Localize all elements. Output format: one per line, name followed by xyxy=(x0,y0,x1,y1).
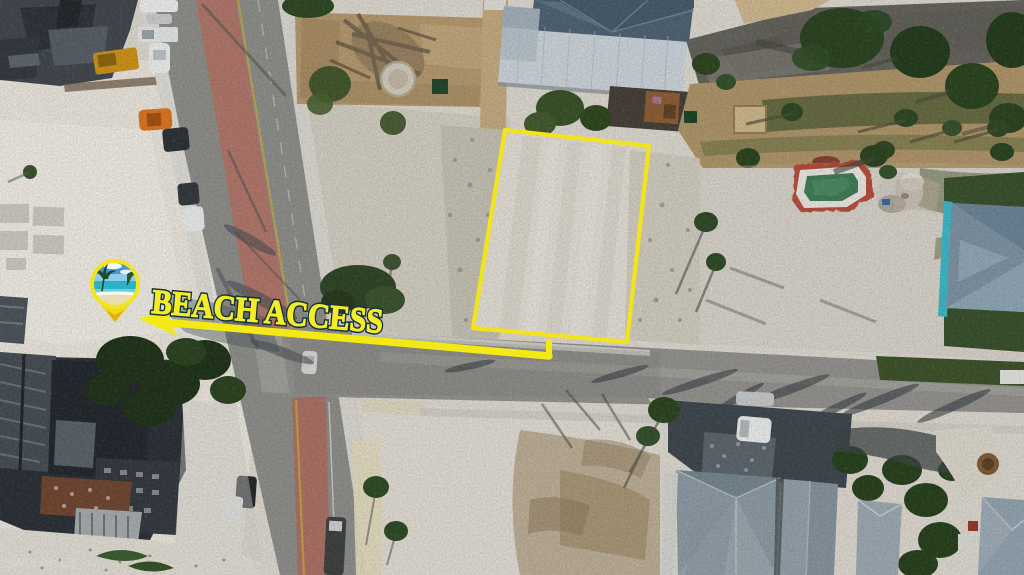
svg-text:SWFLAMLS: SWFLAMLS xyxy=(4,555,76,570)
